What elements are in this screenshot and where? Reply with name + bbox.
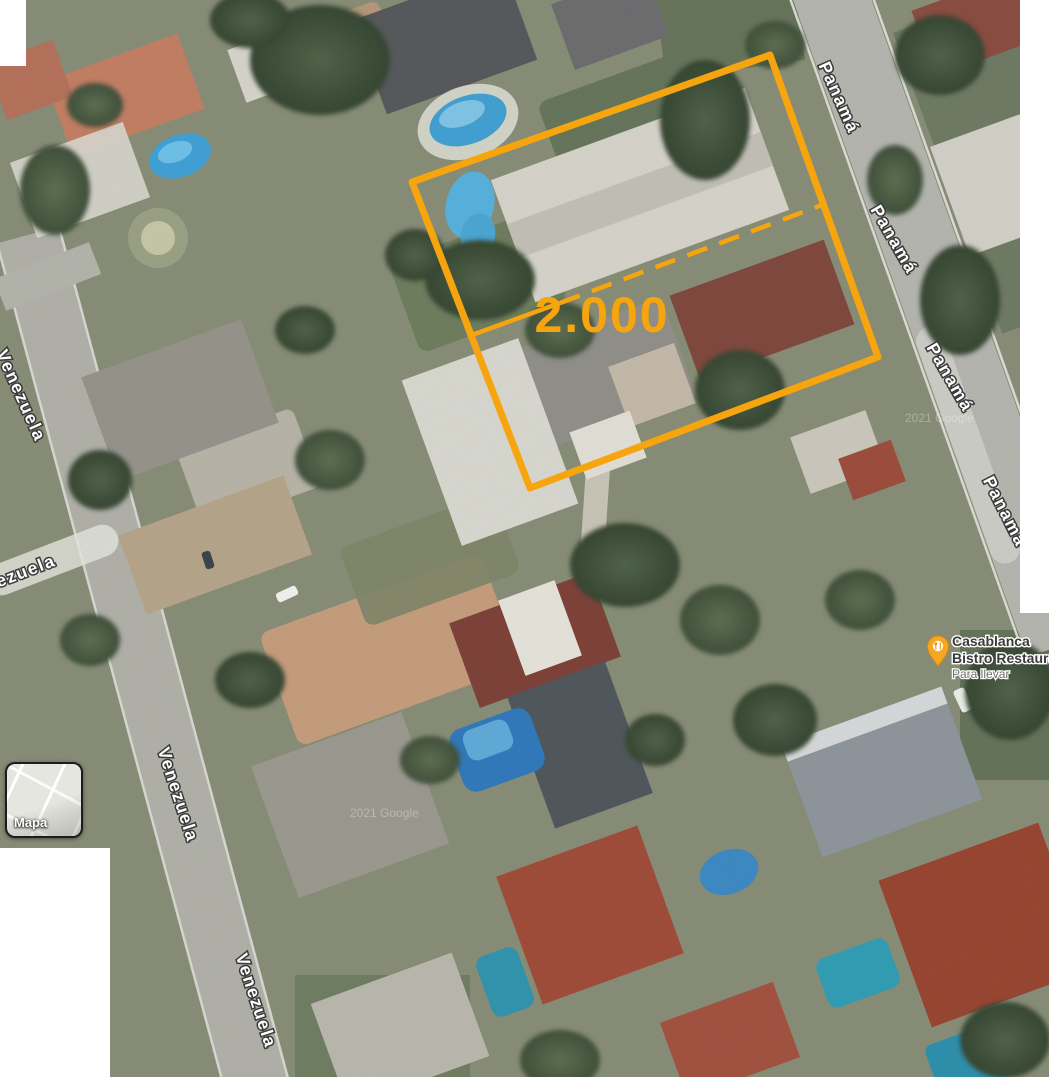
google-watermark-1: 2021 Google [350,806,419,820]
whitespace-right-strip [1020,0,1049,613]
restaurant-marker-inner [933,641,943,651]
map-viewport[interactable]: 2021 Google 2021 Google Panamá Panamá Pa… [0,0,1049,1077]
whitespace-bottom-left [0,848,110,1077]
poi-category[interactable]: Bistro Restaura [952,650,1049,666]
map-type-toggle-label: Mapa [14,815,47,830]
satellite-map[interactable]: 2021 Google 2021 Google Panamá Panamá Pa… [0,0,1049,1077]
poi-service-note: Para llevar [952,667,1009,681]
image-grain [0,0,1049,1077]
whitespace-top-left [0,0,26,66]
map-type-toggle-button[interactable]: Mapa [5,762,83,838]
plot-area-label: 2.000 [534,287,669,343]
poi-name[interactable]: Casablanca [952,633,1030,649]
